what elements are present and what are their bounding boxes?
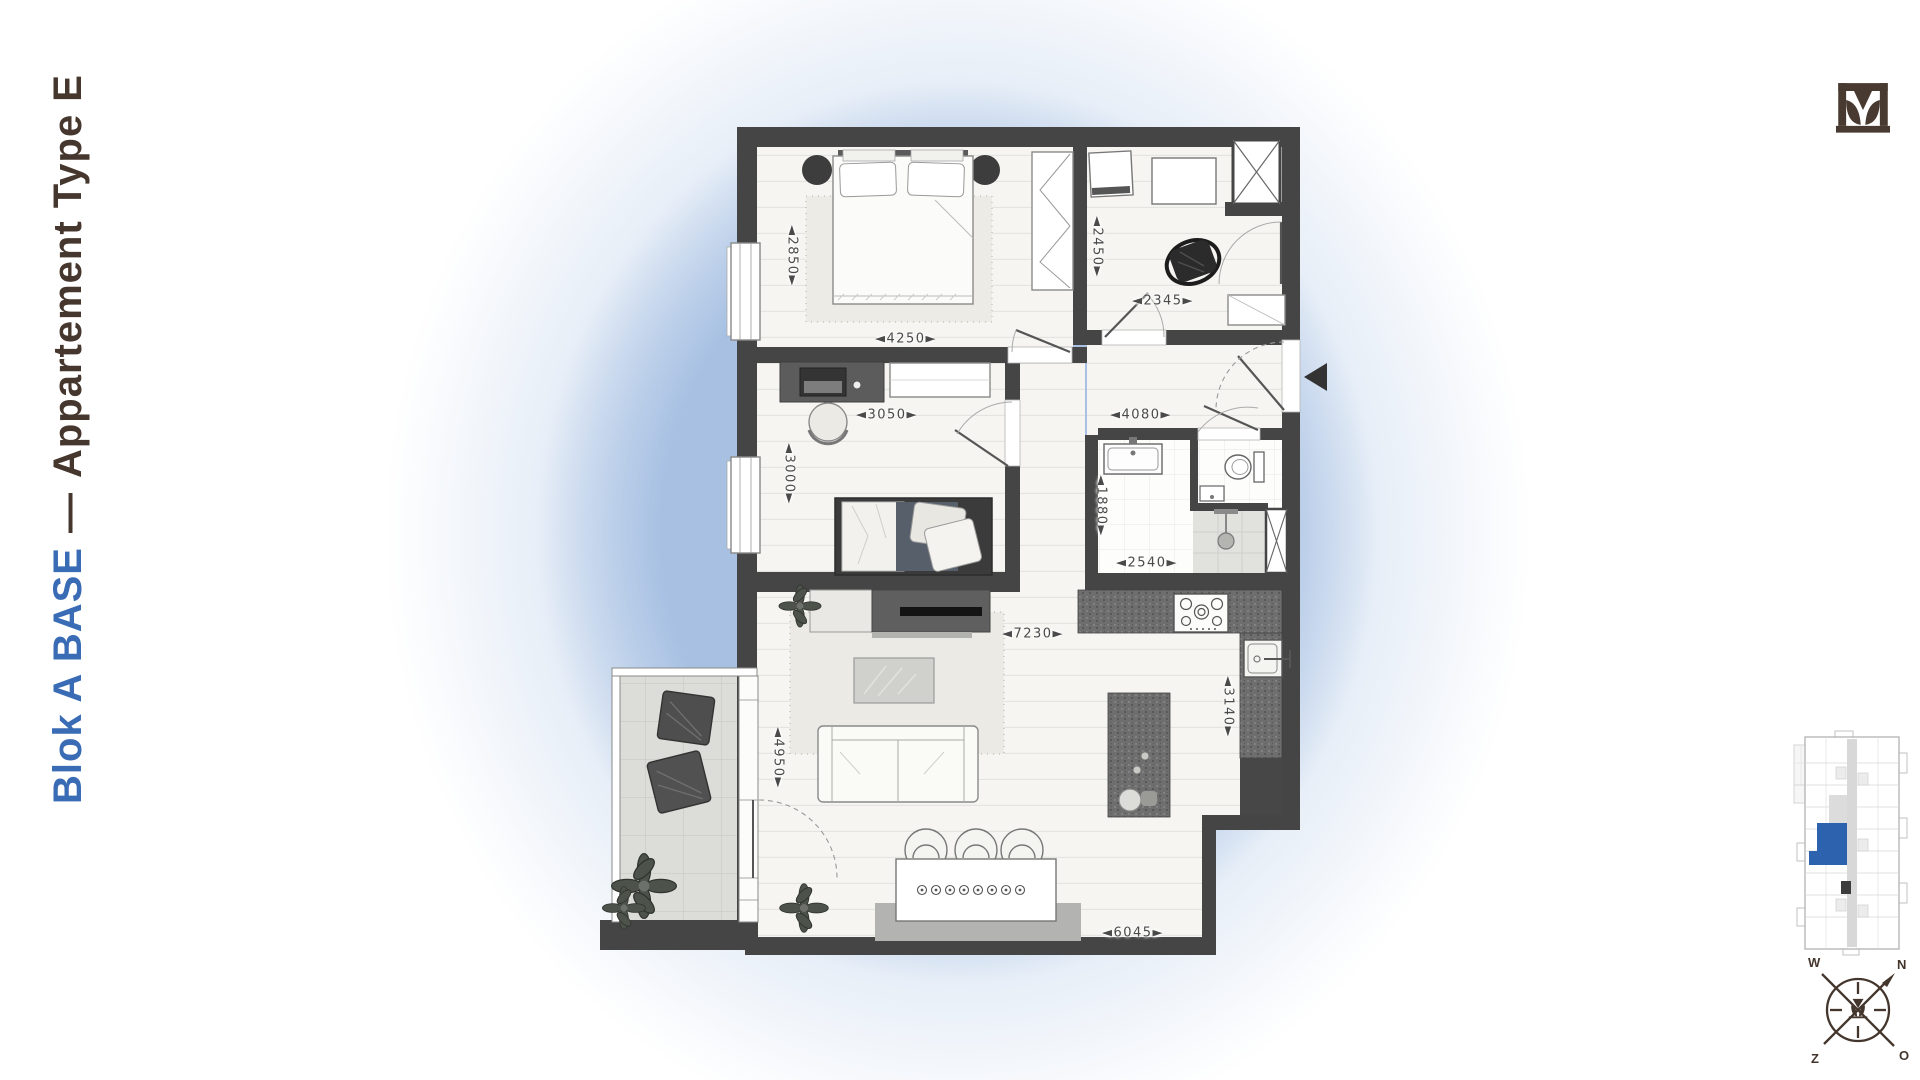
compass-z: Z (1811, 1051, 1819, 1066)
tv-cabinet (810, 590, 872, 632)
brand-logo-icon (1836, 80, 1890, 138)
bedroom2-window (731, 457, 760, 553)
nightstand (970, 155, 1000, 185)
lounge-chair (657, 691, 715, 746)
tv (900, 607, 982, 616)
locator-building (1797, 731, 1907, 955)
dim-kitchen-depth: ◄3140► (1221, 676, 1236, 738)
compass-o: O (1899, 1048, 1909, 1063)
dim-bedroom2-width: ◄3050► (856, 408, 918, 423)
dim-bathroom-depth: ◄1880► (1094, 475, 1109, 537)
building-locator-map (1793, 723, 1918, 958)
shower-bar (1214, 509, 1238, 514)
dim-master-width: ◄4250► (875, 332, 937, 347)
dim-living-depth: ◄4950► (771, 727, 786, 789)
pillow (907, 162, 964, 197)
toilet (1225, 455, 1251, 479)
dim-master-depth: ◄2850► (785, 225, 800, 287)
wardrobe (1032, 152, 1073, 290)
locator-lift-core (1841, 881, 1851, 894)
table (1152, 158, 1216, 204)
shower-drain (1218, 533, 1234, 549)
dim-utility-width: ◄2345► (1132, 294, 1194, 309)
dim-utility-depth: ◄2450► (1090, 216, 1105, 278)
pillow (839, 162, 896, 197)
coffee-table (854, 658, 934, 703)
floorplan (0, 0, 1920, 1080)
desk-chair (809, 403, 847, 441)
corridor-floor (1020, 363, 1085, 592)
nightstand (802, 155, 832, 185)
compass-n: N (1897, 957, 1906, 972)
master-bedroom-window (731, 243, 760, 340)
page: Blok A BASE — Appartement Type E (0, 0, 1920, 1080)
locator-entry-zone (1829, 795, 1847, 825)
dim-living-width: ◄7230► (1002, 627, 1064, 642)
island-bowl (1119, 789, 1141, 811)
compass-w: W (1808, 955, 1821, 970)
entrance-arrow-icon (1304, 363, 1327, 391)
dim-dining-width: ◄6045► (1102, 926, 1164, 941)
dim-hall-width: ◄4080► (1110, 408, 1172, 423)
hall-floor (1087, 345, 1282, 440)
tall-cabinet (1240, 758, 1282, 815)
toilet-tank (1254, 452, 1264, 482)
dim-bedroom2-depth: ◄3000► (782, 443, 797, 505)
dim-bathroom-width: ◄2540► (1116, 556, 1178, 571)
compass-rose-icon: N W Z O (1798, 952, 1918, 1072)
mouse (853, 381, 861, 389)
